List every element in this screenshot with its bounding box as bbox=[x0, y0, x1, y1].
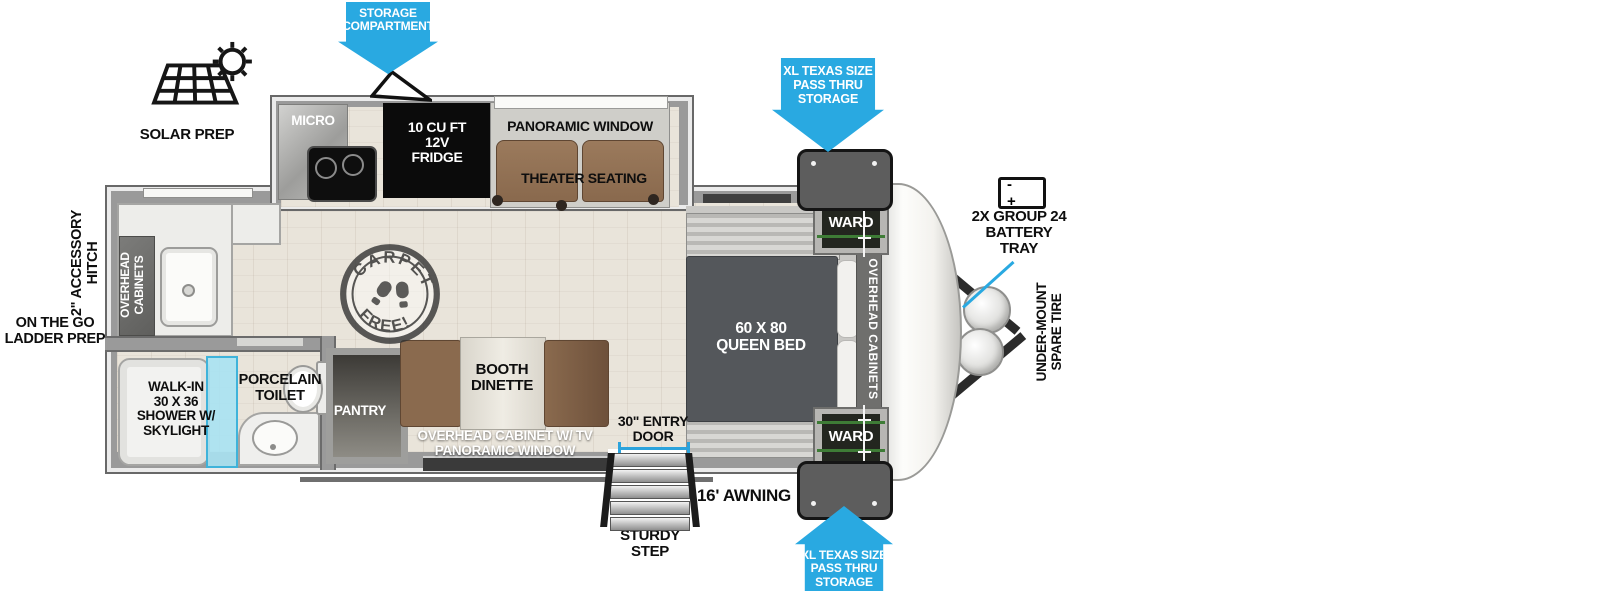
bottom-panoramic-window-glass bbox=[423, 456, 613, 471]
toilet-label: PORCELAIN TOILET bbox=[224, 373, 336, 404]
wardrobe-shelf bbox=[817, 449, 885, 452]
step-tread bbox=[610, 501, 690, 515]
passthru-arrow-top: XL TEXAS SIZE PASS THRU STORAGE bbox=[772, 58, 884, 152]
theater-seating-label: THEATER SEATING bbox=[508, 171, 660, 186]
ladder-prep-label: ON THE GO LADDER PREP bbox=[0, 316, 110, 347]
ward-label: WARD bbox=[815, 429, 887, 445]
sturdy-step-label: STURDY STEP bbox=[606, 528, 694, 560]
passthru-bottom-label: XL TEXAS SIZE PASS THRU STORAGE bbox=[801, 549, 887, 591]
wardrobe-bottom: WARD bbox=[813, 407, 889, 469]
vanity-sink bbox=[252, 420, 298, 456]
queen-bed-label: 60 X 80 QUEEN BED bbox=[686, 321, 836, 354]
battery-icon: - + bbox=[998, 177, 1046, 209]
kitchen-sink-drain bbox=[182, 284, 195, 297]
storage-compartment-label: STORAGE COMPARTMENT bbox=[342, 2, 434, 34]
entry-steps bbox=[610, 453, 690, 527]
awning-label: 16' AWNING bbox=[690, 487, 798, 505]
passthru-storage-box-top bbox=[797, 149, 893, 211]
solar-prep-label: SOLAR PREP bbox=[128, 127, 246, 143]
front-wall-vent bbox=[703, 194, 791, 203]
carpet-free-stamp: CARPET FREE! bbox=[330, 234, 450, 354]
rear-overhead-cabinets-label: OVERHEAD CABINETS bbox=[119, 236, 153, 334]
storage-compartment-pointer bbox=[370, 70, 432, 104]
wardrobe-rod-tick bbox=[858, 451, 871, 453]
passthru-top-label: XL TEXAS SIZE PASS THRU STORAGE bbox=[783, 58, 873, 106]
latch-dot bbox=[872, 161, 877, 166]
rear-window bbox=[143, 188, 253, 198]
bed-overhead-cabinets-label: OVERHEAD CABINETS bbox=[857, 251, 879, 407]
propane-tank-2 bbox=[956, 328, 1004, 376]
cupholder-3 bbox=[648, 194, 659, 205]
entry-door-dimension-line bbox=[618, 447, 690, 450]
cupholder-1 bbox=[492, 195, 503, 206]
entry-door-label: 30" ENTRY DOOR bbox=[610, 414, 696, 444]
dinette-bench-right bbox=[544, 340, 609, 427]
latch-dot bbox=[872, 501, 877, 506]
latch-dot bbox=[811, 501, 816, 506]
battery-terminals: - + bbox=[1001, 176, 1043, 210]
storage-compartment-arrow: STORAGE COMPARTMENT bbox=[338, 2, 438, 74]
step-tread bbox=[610, 469, 690, 483]
overhead-cabinet-tv-label: OVERHEAD CABINET W/ TV PANORAMIC WINDOW bbox=[396, 429, 614, 458]
ward-label: WARD bbox=[815, 215, 887, 231]
panoramic-window-label: PANORAMIC WINDOW bbox=[492, 119, 668, 134]
wardrobe-shelf bbox=[817, 235, 885, 238]
micro-label: MICRO bbox=[280, 114, 346, 129]
propane-tank-1 bbox=[963, 286, 1011, 334]
solar-prep-icon bbox=[146, 40, 258, 128]
wardrobe-rod-tick bbox=[858, 237, 871, 239]
vanity-faucet bbox=[270, 444, 276, 450]
bathroom-door bbox=[237, 338, 303, 346]
step-tread bbox=[610, 517, 690, 531]
step-tread bbox=[610, 485, 690, 499]
latch-dot bbox=[811, 161, 816, 166]
wardrobe-shelf bbox=[817, 421, 885, 424]
slideout-window-glass bbox=[494, 96, 668, 109]
battery-tray-label: 2X GROUP 24 BATTERY TRAY bbox=[955, 209, 1083, 258]
floorplan-canvas: OVERHEAD CABINETS MICRO 10 CU FT 12V FRI… bbox=[0, 0, 1600, 591]
cooktop-burner-2 bbox=[342, 154, 364, 176]
step-tread bbox=[610, 453, 690, 467]
fridge-label: 10 CU FT 12V FRIDGE bbox=[383, 120, 491, 165]
cupholder-2 bbox=[556, 200, 567, 211]
wardrobe-rod-tick bbox=[858, 419, 871, 421]
shower-label: WALK-IN 30 X 36 SHOWER W/ SKYLIGHT bbox=[112, 380, 240, 438]
cooktop-burner-1 bbox=[315, 157, 337, 179]
booth-dinette-label: BOOTH DINETTE bbox=[452, 362, 552, 394]
spare-tire-label: UNDER-MOUNT SPARE TIRE bbox=[1035, 267, 1071, 397]
pantry-label: PANTRY bbox=[326, 404, 394, 419]
